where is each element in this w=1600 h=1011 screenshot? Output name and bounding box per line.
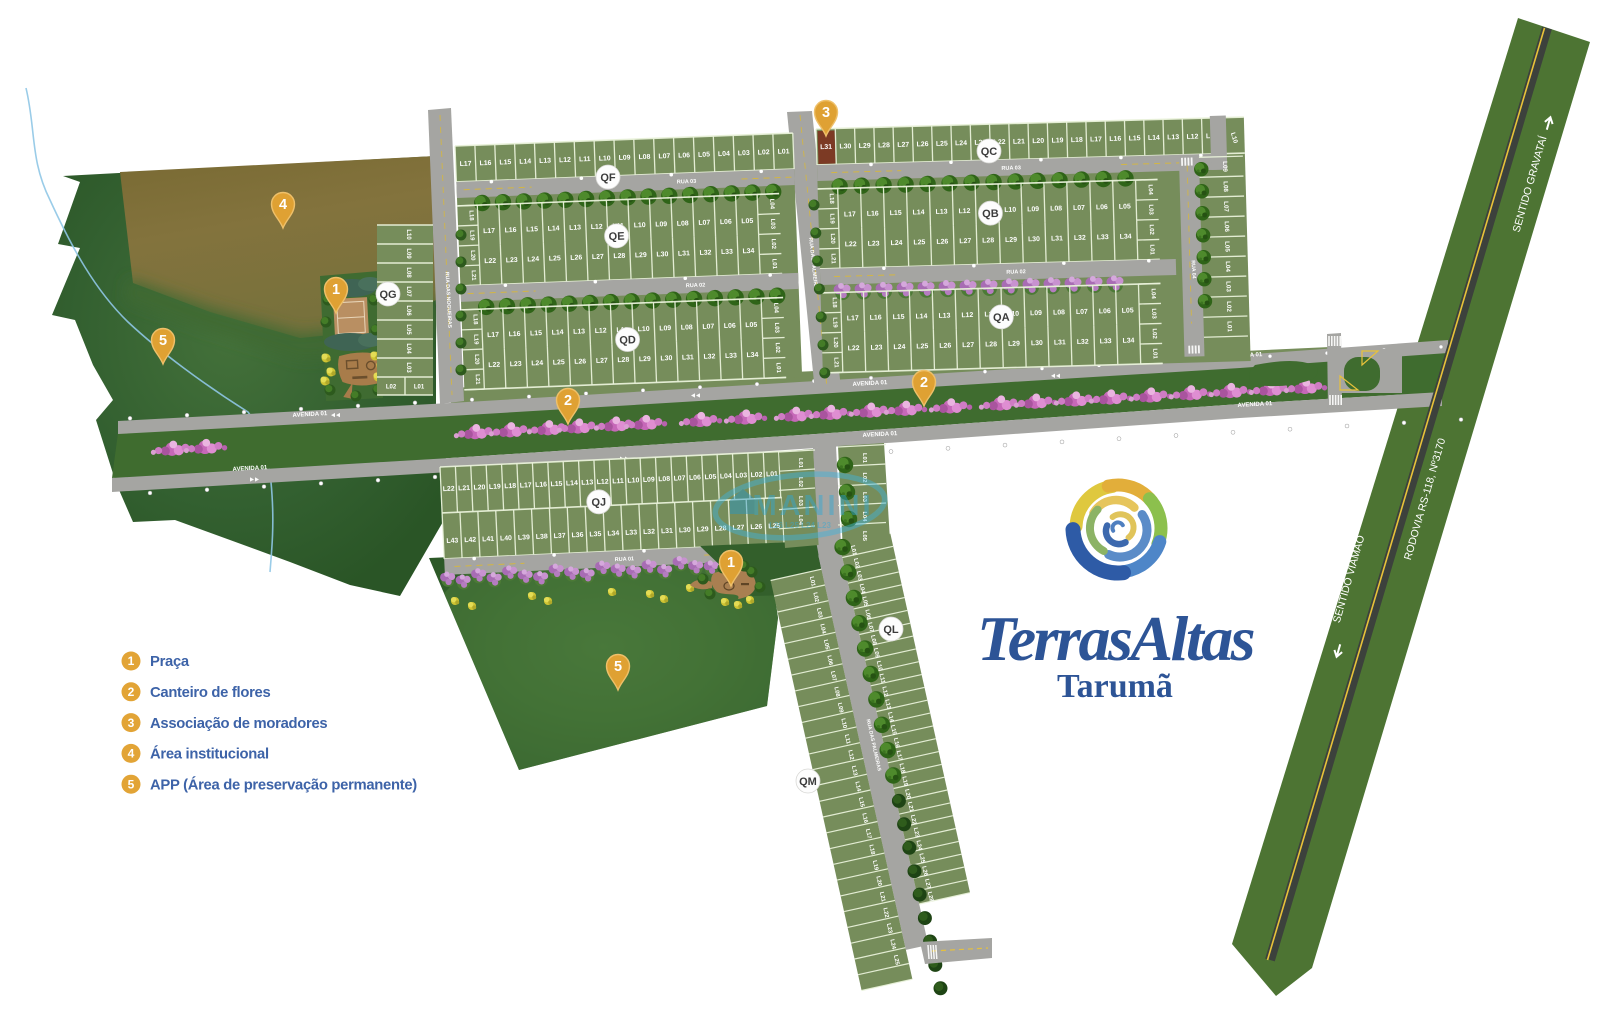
svg-text:L10: L10 [634, 222, 646, 229]
svg-text:L12: L12 [961, 312, 973, 319]
svg-text:L07: L07 [1222, 201, 1229, 212]
svg-text:L28: L28 [878, 142, 890, 149]
svg-text:L36: L36 [571, 532, 583, 540]
svg-text:L19: L19 [468, 230, 474, 241]
svg-text:L05: L05 [704, 474, 716, 482]
svg-text:L15: L15 [526, 226, 538, 233]
svg-text:L01: L01 [775, 362, 781, 373]
svg-text:L24: L24 [893, 344, 905, 351]
svg-text:1: 1 [332, 282, 340, 298]
svg-text:L32: L32 [703, 353, 715, 360]
svg-text:L02: L02 [1148, 224, 1154, 235]
svg-text:L34: L34 [1123, 337, 1135, 344]
svg-text:APP (Área de preservação perma: APP (Área de preservação permanente) [150, 776, 417, 793]
svg-text:L27: L27 [897, 142, 909, 149]
svg-text:L08: L08 [638, 154, 650, 161]
svg-text:L18: L18 [1071, 137, 1083, 144]
svg-text:L07: L07 [658, 153, 670, 160]
svg-text:L30: L30 [1028, 236, 1040, 243]
svg-text:QJ: QJ [591, 497, 606, 510]
svg-text:L12: L12 [1186, 134, 1198, 141]
svg-text:L12: L12 [595, 328, 607, 335]
svg-text:L16: L16 [867, 210, 879, 217]
svg-text:L07: L07 [1073, 205, 1085, 212]
svg-text:RUA 03: RUA 03 [1001, 165, 1021, 172]
svg-text:L01: L01 [1151, 348, 1157, 359]
svg-text:L27: L27 [959, 238, 971, 245]
svg-text:L25: L25 [913, 239, 925, 246]
svg-text:L23: L23 [506, 257, 518, 264]
svg-text:L43: L43 [446, 537, 458, 545]
svg-text:L25: L25 [936, 141, 948, 148]
svg-text:L17: L17 [1090, 136, 1102, 143]
svg-text:L23: L23 [868, 240, 880, 247]
svg-text:L29: L29 [639, 356, 651, 363]
svg-text:QL: QL [883, 624, 899, 636]
svg-text:L18: L18 [828, 193, 834, 204]
svg-text:QM: QM [799, 776, 817, 788]
svg-text:L01: L01 [1226, 321, 1233, 332]
svg-text:L02: L02 [774, 343, 780, 354]
svg-text:QA: QA [993, 312, 1010, 324]
svg-text:L14: L14 [915, 313, 927, 320]
svg-text:L17: L17 [483, 228, 495, 235]
svg-text:L05: L05 [698, 151, 710, 158]
svg-text:L19: L19 [831, 317, 837, 328]
svg-text:L31: L31 [682, 354, 694, 361]
svg-text:L12: L12 [958, 208, 970, 215]
svg-text:L20: L20 [829, 233, 835, 244]
svg-text:L29: L29 [859, 143, 871, 150]
svg-text:2: 2 [564, 393, 572, 409]
svg-text:L14: L14 [552, 329, 564, 336]
svg-text:L15: L15 [1129, 135, 1141, 142]
svg-text:RUA 02: RUA 02 [686, 282, 706, 289]
svg-text:L31: L31 [1054, 339, 1066, 346]
svg-text:2: 2 [128, 685, 135, 699]
svg-text:L19: L19 [1051, 137, 1063, 144]
svg-text:L06: L06 [1223, 221, 1230, 232]
svg-text:L32: L32 [1077, 339, 1089, 346]
svg-text:L04: L04 [1147, 184, 1153, 195]
svg-text:L03: L03 [1224, 281, 1231, 292]
svg-text:L24: L24 [531, 360, 543, 367]
svg-text:L07: L07 [405, 286, 411, 297]
svg-text:Canteiro de flores: Canteiro de flores [150, 685, 270, 701]
svg-text:L31: L31 [1051, 235, 1063, 242]
svg-text:L13: L13 [938, 313, 950, 320]
svg-text:L09: L09 [655, 221, 667, 228]
svg-text:L17: L17 [847, 315, 859, 322]
svg-text:L08: L08 [677, 220, 689, 227]
svg-text:5: 5 [159, 333, 167, 349]
svg-text:L19: L19 [472, 334, 478, 345]
svg-text:L17: L17 [487, 332, 499, 339]
svg-text:QE: QE [608, 231, 624, 244]
svg-text:L01: L01 [797, 458, 803, 469]
svg-text:L24: L24 [955, 140, 967, 147]
svg-text:L16: L16 [505, 227, 517, 234]
svg-text:L33: L33 [1097, 234, 1109, 241]
svg-text:L31: L31 [678, 250, 690, 257]
svg-text:L27: L27 [596, 357, 608, 364]
svg-text:L04: L04 [768, 199, 774, 210]
svg-text:L26: L26 [570, 254, 582, 261]
svg-text:5: 5 [128, 777, 135, 791]
svg-text:L33: L33 [625, 529, 637, 537]
svg-text:L28: L28 [982, 237, 994, 244]
svg-text:L18: L18 [504, 483, 516, 491]
svg-text:L08: L08 [1222, 181, 1229, 192]
svg-text:L13: L13 [581, 479, 593, 487]
svg-text:L20: L20 [832, 337, 838, 348]
svg-text:L20: L20 [473, 354, 479, 365]
svg-text:L25: L25 [553, 359, 565, 366]
svg-text:L13: L13 [936, 209, 948, 216]
svg-text:L28: L28 [985, 341, 997, 348]
svg-text:L05: L05 [861, 531, 867, 542]
svg-text:L03: L03 [1147, 204, 1153, 215]
svg-text:L31: L31 [820, 144, 832, 151]
svg-text:L32: L32 [699, 249, 711, 256]
svg-text:L06: L06 [1099, 308, 1111, 315]
svg-text:L33: L33 [721, 249, 733, 256]
svg-text:4: 4 [279, 197, 287, 213]
svg-text:L12: L12 [559, 157, 571, 164]
svg-text:L22: L22 [488, 362, 500, 369]
svg-text:L17: L17 [520, 482, 532, 490]
svg-text:L02: L02 [751, 472, 763, 480]
svg-text:L21: L21 [458, 485, 470, 493]
svg-text:L05: L05 [1122, 307, 1134, 314]
svg-text:1: 1 [727, 555, 735, 571]
svg-text:L39: L39 [518, 534, 530, 542]
svg-text:L06: L06 [1096, 204, 1108, 211]
svg-text:L03: L03 [769, 219, 775, 230]
svg-text:L12: L12 [591, 224, 603, 231]
svg-text:L17: L17 [844, 211, 856, 218]
svg-text:Praça: Praça [150, 654, 190, 670]
svg-text:QG: QG [379, 289, 396, 301]
svg-text:L12: L12 [597, 479, 609, 487]
svg-text:L20: L20 [469, 250, 475, 261]
svg-text:L07: L07 [673, 475, 685, 483]
svg-text:L10: L10 [638, 326, 650, 333]
svg-text:L03: L03 [405, 362, 411, 373]
svg-text:L05: L05 [1223, 241, 1230, 252]
svg-text:L03: L03 [735, 472, 747, 480]
svg-text:4: 4 [128, 747, 135, 761]
svg-text:L22: L22 [848, 345, 860, 352]
svg-text:L20: L20 [473, 484, 485, 492]
svg-text:L04: L04 [718, 151, 730, 158]
svg-text:L05: L05 [741, 218, 753, 225]
svg-text:L15: L15 [893, 314, 905, 321]
svg-text:L02: L02 [770, 239, 776, 250]
svg-text:L24: L24 [527, 256, 539, 263]
svg-text:L04: L04 [1150, 288, 1156, 299]
svg-text:L35: L35 [589, 531, 601, 539]
svg-text:L34: L34 [746, 352, 758, 359]
svg-text:MANINI: MANINI [752, 490, 873, 522]
svg-text:L22: L22 [845, 241, 857, 248]
svg-text:L33: L33 [1100, 338, 1112, 345]
svg-text:L09: L09 [405, 248, 411, 259]
svg-text:L34: L34 [742, 248, 754, 255]
svg-text:L06: L06 [724, 323, 736, 330]
svg-text:L02: L02 [386, 385, 397, 391]
svg-text:L04: L04 [720, 473, 732, 481]
svg-text:3: 3 [128, 716, 135, 730]
svg-text:L11: L11 [579, 156, 591, 163]
svg-text:L16: L16 [479, 160, 491, 167]
svg-text:L24: L24 [890, 240, 902, 247]
svg-text:L07: L07 [698, 219, 710, 226]
svg-text:L09: L09 [643, 476, 655, 484]
svg-text:L14: L14 [519, 158, 531, 165]
svg-text:L26: L26 [917, 141, 929, 148]
svg-text:L37: L37 [554, 533, 566, 541]
svg-text:L13: L13 [569, 224, 581, 231]
svg-text:L30: L30 [1031, 340, 1043, 347]
svg-text:L02: L02 [1151, 328, 1157, 339]
svg-text:RUA 03: RUA 03 [677, 179, 697, 186]
svg-text:L21: L21 [832, 357, 838, 368]
svg-text:L09: L09 [1221, 161, 1228, 172]
svg-text:L10: L10 [599, 155, 611, 162]
svg-text:L15: L15 [890, 210, 902, 217]
svg-text:L07: L07 [1076, 309, 1088, 316]
svg-text:QB: QB [982, 208, 999, 220]
svg-text:L29: L29 [635, 252, 647, 259]
svg-text:L21: L21 [1013, 138, 1025, 145]
svg-text:L09: L09 [659, 325, 671, 332]
svg-text:L14: L14 [1148, 135, 1160, 142]
svg-text:QD: QD [619, 334, 636, 347]
svg-text:L16: L16 [1109, 136, 1121, 143]
svg-text:L08: L08 [658, 476, 670, 484]
svg-text:L11: L11 [612, 478, 624, 486]
svg-text:L25: L25 [549, 255, 561, 262]
svg-text:2: 2 [920, 375, 928, 391]
svg-text:L30: L30 [839, 143, 851, 150]
svg-text:L23: L23 [510, 361, 522, 368]
svg-text:Tarumã: Tarumã [1057, 668, 1173, 705]
svg-text:L33: L33 [725, 353, 737, 360]
svg-text:L41: L41 [482, 536, 494, 544]
svg-text:L42: L42 [464, 537, 476, 545]
svg-text:L40: L40 [500, 535, 512, 543]
svg-text:L16: L16 [870, 314, 882, 321]
svg-text:L15: L15 [530, 330, 542, 337]
svg-text:L01: L01 [1148, 244, 1154, 255]
svg-text:L06: L06 [689, 474, 701, 482]
svg-text:L21: L21 [829, 253, 835, 264]
svg-text:L10: L10 [405, 229, 411, 240]
svg-text:L26: L26 [750, 524, 762, 532]
svg-text:L22: L22 [443, 486, 455, 494]
svg-text:L13: L13 [573, 328, 585, 335]
svg-text:L03: L03 [1150, 308, 1156, 319]
svg-text:L04: L04 [772, 303, 778, 314]
svg-text:L30: L30 [656, 251, 668, 258]
svg-text:L09: L09 [619, 154, 631, 161]
svg-text:L18: L18 [831, 297, 837, 308]
svg-text:RUA 01: RUA 01 [615, 556, 635, 563]
svg-text:L34: L34 [607, 530, 619, 538]
svg-text:L25: L25 [916, 343, 928, 350]
svg-text:L14: L14 [566, 480, 578, 488]
svg-text:QF: QF [600, 172, 616, 184]
svg-text:L30: L30 [660, 355, 672, 362]
svg-text:L28: L28 [613, 253, 625, 260]
svg-text:L19: L19 [489, 483, 501, 491]
svg-text:L27: L27 [962, 342, 974, 349]
svg-text:L18: L18 [471, 314, 477, 325]
svg-text:5: 5 [614, 659, 622, 675]
svg-text:L15: L15 [499, 159, 511, 166]
svg-text:L09: L09 [1027, 206, 1039, 213]
svg-text:1: 1 [128, 654, 135, 668]
svg-text:L26: L26 [939, 343, 951, 350]
svg-text:L08: L08 [1050, 205, 1062, 212]
svg-text:L38: L38 [536, 533, 548, 541]
svg-text:L26: L26 [936, 239, 948, 246]
svg-text:L13: L13 [539, 158, 551, 165]
svg-text:L34: L34 [1120, 233, 1132, 240]
svg-text:L04: L04 [1224, 261, 1231, 272]
svg-text:TerrasAltas: TerrasAltas [977, 603, 1254, 674]
svg-text:L16: L16 [535, 481, 547, 489]
svg-text:L10: L10 [1004, 207, 1016, 214]
svg-text:L02: L02 [1225, 301, 1232, 312]
svg-text:L26 L25 L24 L23: L26 L25 L24 L23 [769, 521, 831, 530]
svg-text:L21: L21 [474, 374, 480, 385]
svg-text:L08: L08 [1053, 309, 1065, 316]
svg-text:3: 3 [822, 105, 830, 121]
svg-text:L29: L29 [1005, 237, 1017, 244]
svg-text:L05: L05 [745, 322, 757, 329]
svg-text:L01: L01 [414, 385, 425, 391]
svg-text:L32: L32 [1074, 235, 1086, 242]
svg-text:L01: L01 [778, 148, 790, 155]
svg-text:L32: L32 [643, 529, 655, 537]
svg-text:Área institucional: Área institucional [150, 746, 269, 763]
svg-text:L26: L26 [574, 358, 586, 365]
svg-text:L29: L29 [1008, 341, 1020, 348]
svg-text:L06: L06 [720, 219, 732, 226]
svg-text:L29: L29 [697, 526, 709, 534]
svg-text:L01: L01 [771, 259, 777, 270]
svg-text:L03: L03 [738, 150, 750, 157]
svg-text:L10: L10 [627, 477, 639, 485]
svg-text:L19: L19 [828, 213, 834, 224]
svg-text:L20: L20 [1032, 138, 1044, 145]
svg-text:RUA 02: RUA 02 [1006, 269, 1026, 276]
svg-text:L21: L21 [470, 270, 476, 281]
svg-text:L14: L14 [913, 209, 925, 216]
svg-text:L02: L02 [797, 477, 803, 487]
svg-text:L23: L23 [871, 344, 883, 351]
svg-text:L03: L03 [773, 323, 779, 334]
svg-text:L13: L13 [1167, 134, 1179, 141]
svg-text:L28: L28 [617, 357, 629, 364]
svg-text:L16: L16 [509, 331, 521, 338]
svg-text:L15: L15 [550, 481, 562, 489]
svg-text:L06: L06 [405, 305, 411, 316]
svg-text:L01: L01 [861, 453, 867, 464]
svg-text:L08: L08 [405, 267, 411, 278]
svg-text:L02: L02 [758, 149, 770, 156]
svg-text:Associação de moradores: Associação de moradores [150, 716, 327, 732]
svg-text:L07: L07 [702, 323, 714, 330]
svg-text:L27: L27 [592, 254, 604, 261]
svg-text:QC: QC [981, 146, 998, 158]
svg-text:L17: L17 [460, 161, 472, 168]
svg-text:L09: L09 [1030, 310, 1042, 317]
svg-text:L18: L18 [467, 210, 473, 221]
svg-text:L31: L31 [661, 528, 673, 536]
svg-text:L05: L05 [405, 324, 411, 335]
svg-text:L30: L30 [679, 527, 691, 535]
svg-text:L05: L05 [1119, 203, 1131, 210]
svg-text:L08: L08 [681, 324, 693, 331]
svg-text:L22: L22 [484, 258, 496, 265]
svg-text:L14: L14 [548, 225, 560, 232]
svg-text:L04: L04 [405, 343, 411, 354]
svg-text:L06: L06 [678, 152, 690, 159]
